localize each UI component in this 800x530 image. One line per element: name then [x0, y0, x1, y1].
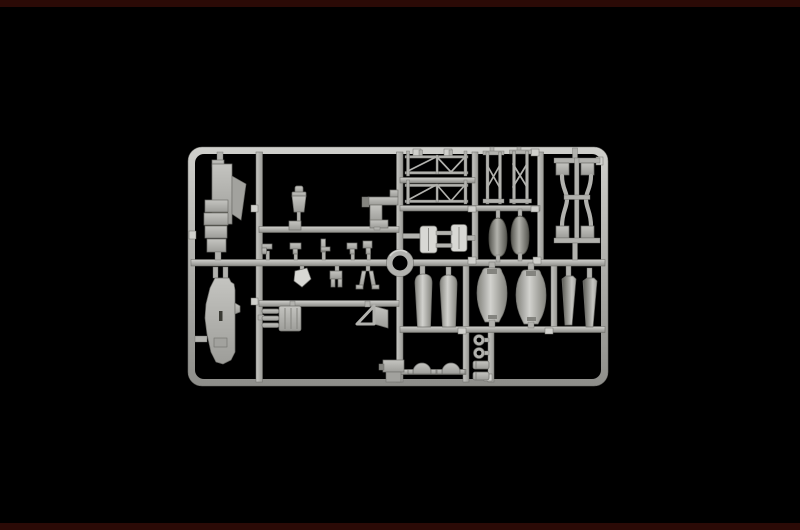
rail-v5: [551, 263, 557, 331]
center-ring: [387, 250, 414, 277]
rail-h3: [259, 301, 399, 307]
rail-h6: [400, 327, 605, 333]
sprue-photo: [0, 0, 800, 530]
rail-v3-lower: [463, 262, 469, 382]
rail-v1: [256, 152, 263, 382]
rail-h4: [400, 178, 475, 184]
photo-stage: [0, 0, 800, 530]
sprue-frame: [188, 147, 608, 386]
